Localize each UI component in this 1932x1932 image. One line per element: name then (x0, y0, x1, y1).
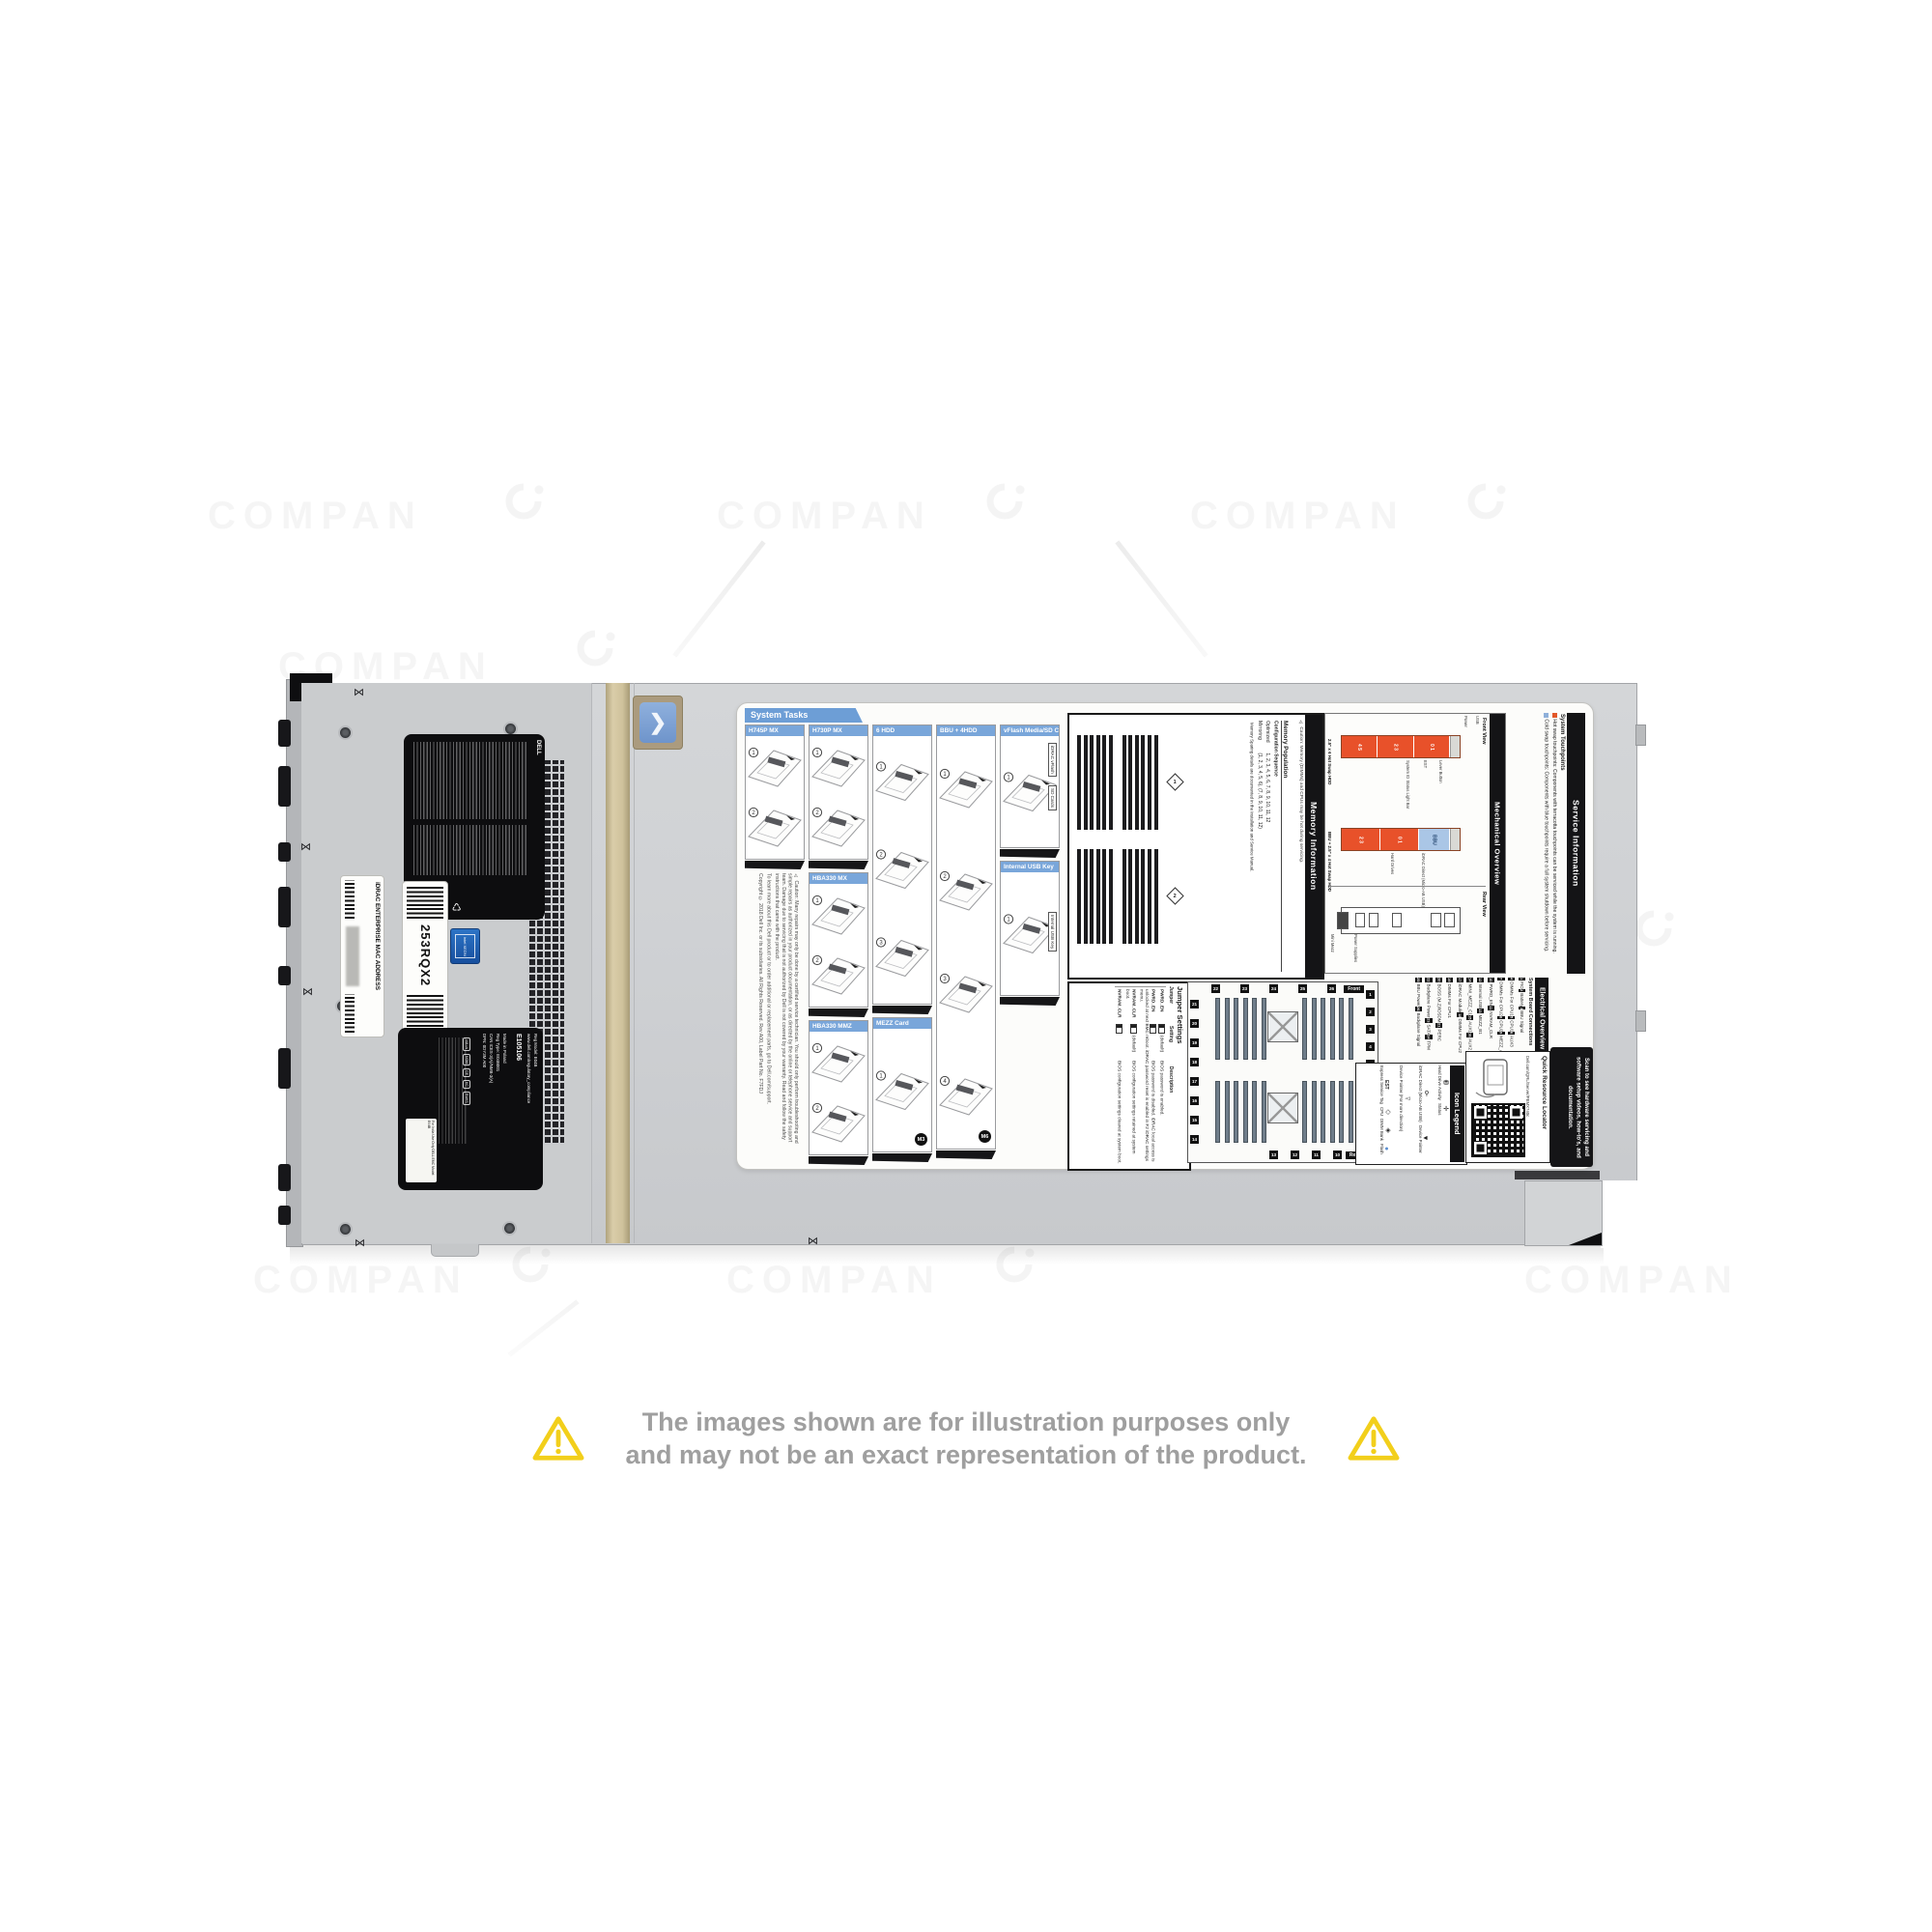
connection-name: MEZZ_B1 (1478, 1013, 1483, 1035)
electrical-overview: Electrical Overview System Board Connect… (1380, 978, 1548, 1059)
dimm-slot (1262, 998, 1266, 1060)
metric-badge: M3 (915, 1133, 927, 1146)
task-panel-body: 12 (810, 884, 867, 1007)
cpu-socket (1267, 1011, 1298, 1042)
made-in: Made in Poland (501, 1034, 507, 1184)
cfg: Mirroring (1256, 721, 1262, 752)
connection-item: 7 DIMMs For CPU2 (1496, 978, 1504, 1016)
bbu-segment: BBU (1419, 829, 1450, 850)
task-illustration: 1 (810, 1032, 867, 1092)
product-photo: COMPANCOMPANCOMPANCOMPANCOMPANCOMPANCOMP… (0, 0, 1932, 1932)
task-illustration: 3 (937, 941, 995, 1043)
dimm-slot (1141, 847, 1145, 944)
screw (505, 724, 516, 734)
connection-item: 24 TPM (1424, 1035, 1432, 1050)
front-view-title: Front View (1481, 718, 1486, 744)
page-curl-bar (809, 1156, 868, 1165)
connection-name: BBU Power (1416, 982, 1421, 1007)
jumper-description: BIOS configuration settings cleared at s… (1118, 1061, 1122, 1164)
connection-item: 2 Battery (1518, 989, 1525, 1008)
legend-entry: ESTExpress Service Tag (1378, 1065, 1389, 1104)
dimm-slot (1262, 1081, 1266, 1143)
connection-item: 15 AUX1 (1465, 1015, 1473, 1033)
mech-callout: Power Supplies (1352, 934, 1357, 969)
butterfly-cutout: ⋈ (300, 840, 311, 853)
h-description: Description (1168, 1066, 1174, 1094)
jumper-name: PWRD_EN (1159, 989, 1165, 1022)
hard-drive-activity-icon: ⛃ (1441, 1065, 1449, 1100)
barcode (345, 880, 355, 919)
task-panel-title: Internal USB Key (1001, 862, 1059, 872)
connection-name: Battery (1520, 992, 1524, 1008)
dimm-slot (1215, 1081, 1220, 1143)
connection-item: 4 DIMMs For CPU1 (1507, 978, 1515, 1016)
connection-name: BOSS (M.2)/IDSDM (1436, 982, 1441, 1022)
jumper-name: NVRAM_CLR (1131, 989, 1137, 1022)
board-callout: 18 (1190, 1058, 1199, 1066)
task-panel-title: BBU + 4HDD (937, 725, 995, 736)
warning-triangle-icon (530, 1413, 586, 1463)
dimm-slot (1077, 847, 1081, 944)
watermark-logo-icon (574, 626, 616, 674)
copyright-paragraph: Copyright © 2018 Dell Inc. or its subsid… (756, 873, 763, 1155)
electrical-overview-header: Electrical Overview (1535, 978, 1548, 1059)
dimm-slot (1154, 847, 1158, 944)
dimm-slot (1252, 1081, 1257, 1143)
dimm-slot (1225, 998, 1230, 1060)
dimm-slot (1339, 1081, 1344, 1143)
front-latch (278, 842, 291, 862)
callout-box: Internal USB Key (1048, 912, 1057, 952)
system-tasks-tab: System Tasks (745, 708, 863, 723)
reg-text-col2: Made in Poland Reg Type: E04B001 CAN ICE… (480, 1034, 508, 1184)
front-tag: Front (1344, 985, 1364, 993)
reg-type: Reg Type: E04B001 (495, 1034, 500, 1184)
watermark-logo-icon (1633, 906, 1675, 954)
dpn: DPN: 0DY3M A00 (481, 1034, 487, 1184)
butterfly-cutout: ⋈ (354, 686, 364, 698)
qrl-title: Quick Resource Locator (1540, 1056, 1548, 1158)
dimm-slot (1252, 998, 1257, 1060)
watermark-logo-icon (502, 479, 545, 527)
dimm-bank-row: 1 (1077, 724, 1205, 838)
connection-name: DIMMs For CPU2 (1499, 980, 1504, 1016)
dimm-bank-badge: 1 (1166, 773, 1183, 790)
tasks-caution: ⚠ Caution: Many repairs may only be done… (745, 873, 801, 1155)
legend-entry: ◇CPU (1378, 1107, 1391, 1116)
task-panel: vFlash Media/SD Card1iDRAC vFlashSD Card… (1000, 724, 1060, 848)
dimm-slot (1084, 847, 1088, 944)
dimm-slot (1225, 1081, 1230, 1143)
mechanical-overview-panel: Mechanical Overview Front View 2.5" x 6 … (1324, 713, 1506, 974)
barcode (345, 994, 355, 1033)
qrl-panel: Quick Resource Locator Dell.com/QRL/Serv… (1465, 1051, 1550, 1163)
task-panel-title: 6 HDD (873, 725, 931, 736)
dimm-slot (1077, 733, 1081, 830)
screw (504, 1223, 515, 1234)
connection-name: Backplane Power (1427, 982, 1432, 1017)
task-panel: H730P MX12 (809, 724, 868, 860)
server-shadow (290, 1245, 1604, 1264)
rear-connector (1369, 913, 1378, 927)
dimm-slot (1339, 998, 1344, 1060)
rear-view-diagram (1341, 907, 1461, 934)
dimm-slot (1312, 998, 1317, 1060)
flash-icon: ● (1383, 1144, 1390, 1154)
board-callout: 12 (1291, 1151, 1299, 1159)
system-board-diagram: Front Rear 12345678910111213141516171819… (1187, 981, 1378, 1163)
dimm-slot (1321, 998, 1325, 1060)
task-illustration: 3 (873, 912, 931, 1000)
board-callout: 19 (1190, 1038, 1199, 1047)
recycle-icon: ♺ (452, 902, 469, 914)
dimm-slot (1312, 1081, 1317, 1143)
task-panel-title: H730P MX (810, 725, 867, 736)
cold-swap-note: Cold swap touchpoints: Components with b… (1543, 713, 1549, 974)
mech-callout: USB (1474, 716, 1479, 733)
icon-legend-entries: ⛃Hard Drive Activity✛Status⚲iDRAC Direct… (1373, 1065, 1450, 1162)
connection-item: 8 CPU2 (1496, 1016, 1504, 1032)
task-panel-body: 12 (810, 736, 867, 859)
rear-connector (1392, 913, 1402, 927)
jumper-icon (1116, 1024, 1122, 1034)
watermark-logo-icon (1633, 906, 1675, 954)
legend-entry: ◄Device Pointer (1417, 1125, 1429, 1153)
dimm-slot (1141, 733, 1145, 830)
rear-connector (1431, 913, 1441, 927)
memory-information-panel: Memory Information ⚠ Caution: Memory (DI… (1067, 713, 1324, 980)
service-tag-text: 253RQX2 (418, 924, 433, 988)
dimm-slot (1109, 733, 1113, 830)
task-panel: MEZZ Card1M3 (872, 1017, 932, 1152)
watermark-text: COMPAN (208, 495, 423, 538)
jumper-settings-panel: Jumper Settings Jumper Setting Descripti… (1067, 981, 1191, 1171)
device-pointer-icon: ◄ (1422, 1125, 1429, 1153)
connection-item: 6 AUX3 (1507, 1032, 1515, 1047)
butterfly-cutout: ⋈ (302, 985, 313, 998)
task-panel-title: MEZZ Card (873, 1018, 931, 1029)
mac-redacted (346, 926, 359, 986)
front-latch (278, 1164, 291, 1191)
dimm-slot (1135, 733, 1139, 830)
barcode (407, 886, 443, 919)
jumper-name: NVRAM_CLR (1117, 989, 1122, 1022)
task-illustration: 1 (873, 1029, 931, 1150)
jumper-row: PWRD_EN BIOS password is disabled. iDRAC… (1138, 986, 1157, 1166)
connections-list: 1 FIO2 Battery3 BBU Signal4 DIMMs For CP… (1411, 978, 1525, 1059)
board-callout: 13 (1269, 1151, 1278, 1159)
dimm-slot (1148, 847, 1151, 944)
cpu-socket (1267, 1093, 1298, 1123)
connection-item: 26 Backplane Signal (1414, 1007, 1422, 1046)
board-callout: 22 (1211, 984, 1220, 993)
callout-box: iDRAC vFlash (1048, 743, 1057, 777)
device-pointer-more-icon: ◅ (1403, 1065, 1410, 1131)
legend-label: Express Service Tag (1378, 1065, 1383, 1104)
dimm-slot (1349, 998, 1353, 1060)
legend-entry: ⛃Hard Drive Activity (1436, 1065, 1449, 1100)
connection-item: 21 PERC (1435, 1023, 1442, 1041)
mech-callout: EST (1422, 760, 1427, 822)
cold-text: Cold swap touchpoints: Components with b… (1543, 719, 1548, 952)
connection-name: NVRAM_CLR (1489, 1010, 1493, 1038)
connection-item: 5 CPU1 (1507, 1016, 1515, 1032)
qr-finder (1510, 1106, 1522, 1119)
legend-entry: ✛Status (1436, 1103, 1449, 1115)
connection-name: Internal USB (1478, 982, 1483, 1009)
connection-name: CPU2 (1499, 1019, 1504, 1032)
task-column: H730P MX12HBA330 MX12HBA330 MMZ12 (809, 724, 868, 1168)
watermark-text: COMPAN (717, 495, 932, 538)
warning-triangle-icon (1346, 1413, 1402, 1463)
dimm-slot (1154, 733, 1158, 830)
rear-slot (1515, 1171, 1600, 1179)
page-curl-bar (809, 1009, 868, 1017)
connection-name: CPU1 (1509, 1019, 1514, 1032)
dimm-slot (1122, 733, 1126, 830)
task-illustration: 1 (937, 736, 995, 838)
microtext-block (413, 742, 527, 819)
dimm-slot (1122, 847, 1126, 944)
jumper-rows: PWRD_EN (default) BIOS password is enabl… (1115, 986, 1166, 1166)
memory-note: Memory Sparing details are documented in… (1248, 723, 1254, 972)
task-panel: Internal USB Key1Internal USB Key (1000, 861, 1060, 996)
page-curl-bar (872, 1153, 932, 1162)
board-callout: 11 (1312, 1151, 1321, 1159)
microtext-block (439, 1037, 468, 1144)
task-illustration: 2 (873, 824, 931, 912)
service-information-label: System Tasks H745P MX12⚠ Caution: Many r… (736, 702, 1594, 1170)
connection-name: AUX2 (1467, 1037, 1472, 1050)
dimm-bank (1215, 998, 1271, 1060)
hdd6-label: 2.5" x 6 Hot Swap HDD (1327, 739, 1332, 784)
disclaimer-line1: The images shown are for illustration pu… (625, 1406, 1306, 1438)
mechanical-overview-header: Mechanical Overview (1490, 714, 1505, 973)
reg-text-col1: Reg Model: E04B www.dell.com/regulatory_… (525, 1034, 539, 1184)
divider (1329, 886, 1486, 887)
screw (340, 727, 351, 738)
dimm-slot (1215, 998, 1220, 1060)
side-tab (1635, 724, 1646, 746)
memory-population-title: Memory Population (1281, 721, 1288, 972)
india-box: For India Use Only DELL EMC Model: E04B (406, 1119, 437, 1182)
task-panel-body: 123 (873, 736, 931, 1004)
board-callout: 3 (1366, 1025, 1375, 1034)
rear-connector (1444, 913, 1455, 927)
connection-name: PERC (1436, 1028, 1441, 1041)
bbu4-diagram: 2 30 1BBU (1341, 828, 1461, 851)
legend-label: Hard Drive Activity (1436, 1065, 1441, 1100)
dimm-slot (1096, 847, 1100, 944)
task-panel-title: HBA330 MX (810, 873, 867, 884)
dimm-slot (1330, 998, 1335, 1060)
watermark-text: COMPAN (1524, 1259, 1740, 1302)
release-button: ❯ (639, 702, 676, 743)
legend-label: Device Pointer (1417, 1125, 1422, 1153)
memory-information-header: Memory Information (1305, 715, 1322, 978)
legend-entry: ●Flash (1378, 1144, 1390, 1154)
microtext-block (413, 825, 527, 875)
connection-item: 22 Backplane Power (1424, 978, 1432, 1018)
dimm-bank-badge: 2 (1166, 887, 1183, 904)
hot-text: Hot swap touchpoints: Components with te… (1551, 719, 1557, 952)
task-illustration: 1 (810, 736, 867, 796)
task-panel-title: HBA330 MMZ (810, 1021, 867, 1032)
watermark-text: COMPAN (1190, 495, 1406, 538)
board-callout: 4 (1366, 1042, 1375, 1051)
watermark-logo-icon (1464, 479, 1507, 527)
hdd6-diagram: 4 52 30 1 (1341, 735, 1461, 758)
dimm-slot (1148, 733, 1151, 830)
connection-item: 18 DIMMs For CPU2 (1456, 1012, 1463, 1053)
drive-segment: 2 3 (1378, 736, 1413, 757)
page-curl-bar (745, 861, 805, 869)
task-column: BBU + 4HDD1234M6 (936, 724, 996, 1162)
drive-segment: 0 1 (1380, 829, 1419, 850)
board-callout: 23 (1240, 984, 1249, 993)
mech-callout: Mini Mezz (1329, 934, 1334, 969)
cfg: Optimized (1264, 721, 1270, 752)
page-curl-bar (936, 1151, 996, 1159)
butterfly-cutout: ⋈ (355, 1236, 365, 1249)
board-callout: 26 (1327, 984, 1336, 993)
memory-caution: ⚠ Caution: Memory (DIMMs) and CPUs may b… (1298, 721, 1303, 972)
dimm-slot (1084, 733, 1088, 830)
dimm-bank (1215, 1081, 1271, 1143)
light-streak (508, 1299, 580, 1356)
legend-label: Flash (1378, 1144, 1383, 1154)
rear-foot (1524, 1180, 1603, 1246)
task-panel: H745P MX12 (745, 724, 805, 860)
connection-name: SATA (1427, 1023, 1432, 1035)
front-latch (278, 766, 291, 807)
dimm-bank-number: 2 (1174, 893, 1177, 898)
system-board-connections-title: System Board Connections (1527, 978, 1533, 1059)
legend-entry: ⚲iDRAC Direct (Micro-AB USB) (1417, 1065, 1430, 1122)
connection-item: 20 BOSS (M.2)/IDSDM (1435, 978, 1442, 1023)
dimm-slot (1128, 847, 1132, 944)
task-column: H745P MX12⚠ Caution: Many repairs may on… (745, 724, 805, 1155)
connection-name: DIMMs For CPU2 (1458, 1017, 1463, 1053)
disclaimer-text: The images shown are for illustration pu… (625, 1406, 1306, 1471)
dimm-bank-icon: ◈ (1383, 1119, 1391, 1141)
connection-item: 11 NVRAM_CLR (1487, 1006, 1494, 1038)
col-configuration: Configuration (1272, 721, 1278, 753)
connection-name: DIMMs For CPU1 (1509, 980, 1514, 1016)
side-tab (1635, 1010, 1646, 1032)
chevron-right-icon: ❯ (649, 710, 667, 735)
hot-touchpoint-swatch (1552, 713, 1557, 718)
dimm-slot (1330, 1081, 1335, 1143)
mech-callout: Power (1463, 716, 1467, 733)
bbu4-label: BBU + 2.5" x 4 Hot Swap HDD (1327, 832, 1332, 892)
drive-segment: 0 1 (1414, 736, 1450, 757)
page-curl-bar (809, 861, 868, 869)
watermark-text: COMPAN (253, 1259, 469, 1302)
rear-connector (1337, 912, 1349, 929)
task-panel-body: 12 (746, 736, 804, 859)
dimm-slot (1243, 998, 1248, 1060)
connection-item: 10 PWRD_EN (1487, 978, 1494, 1006)
jumper-setting: (default) (1159, 1036, 1165, 1061)
dimm-bank (1302, 998, 1358, 1060)
front-latch (278, 1206, 291, 1225)
learn-more-paragraph: To learn more about this Dell product or… (765, 873, 772, 1155)
connection-name: TPM (1427, 1039, 1432, 1050)
board-callout: 16 (1190, 1096, 1199, 1105)
rear-connector (1355, 913, 1365, 927)
connection-item: 19 DIMMs For CPU1 (1445, 978, 1453, 1018)
page-curl-bar (872, 1006, 932, 1014)
service-information-panel: Service Information System Touchpoints H… (1508, 713, 1585, 974)
jumper-icon (1130, 1024, 1137, 1034)
watermark-logo-icon (1464, 479, 1507, 527)
dimm-slot (1243, 1081, 1248, 1143)
disclaimer-line2: and may not be an exact representation o… (625, 1438, 1306, 1471)
light-streak (672, 540, 765, 657)
task-panel-title: vFlash Media/SD Card (1001, 725, 1059, 736)
reg-model: Reg Model: E04B (532, 1034, 538, 1184)
dimm-slot (1234, 1081, 1238, 1143)
board-callout: 17 (1190, 1077, 1199, 1086)
jumper-name: PWRD_EN (1151, 989, 1156, 1022)
reg-site: www.dell.com/regulatory_compliance (526, 1034, 531, 1184)
board-callout: 24 (1269, 984, 1278, 993)
dimm-group (1122, 847, 1161, 944)
dimm-group (1077, 733, 1116, 830)
regulatory-label-bottom: Reg Model: E04B www.dell.com/regulatory_… (398, 1028, 543, 1190)
butterfly-cutout: ⋈ (808, 1235, 818, 1247)
mech-callout: iDRAC Direct (Micro-AB USB) (1420, 853, 1425, 884)
memory-row-optimized: Optimized 1, 2, 3, 4, 5, 6, 7, 8, 9, 10,… (1264, 721, 1270, 972)
dimm-slot (1302, 1081, 1307, 1143)
watermark-logo-icon (983, 479, 1026, 527)
connection-item: 13 MEZZ_B1 (1476, 1009, 1484, 1035)
legend-label: iDRAC Direct (Micro-AB USB) (1417, 1065, 1422, 1122)
system-touchpoints-title: System Touchpoints (1559, 714, 1565, 973)
connection-item: 16 AUX2 (1465, 1033, 1473, 1050)
end-cap (1450, 736, 1460, 757)
light-streak (1115, 540, 1207, 657)
qr-finder (1474, 1106, 1487, 1119)
idrac-mac-label: iDRAC ENTERPRISE MAC ADDRESS (340, 875, 384, 1037)
end-cap (1450, 829, 1460, 850)
connection-item: 1 FIO (1518, 978, 1525, 989)
connection-name: MINI_MEZZ_C1 (1467, 982, 1472, 1015)
jumper-row: NVRAM_CLR BIOS configuration settings cl… (1115, 986, 1123, 1166)
jumper-setting: (default) (1131, 1036, 1137, 1061)
dimm-bank-number: 1 (1174, 779, 1177, 784)
board-callout: 1 (1366, 990, 1375, 999)
task-column: vFlash Media/SD Card1iDRAC vFlashSD Card… (1000, 724, 1060, 1009)
connection-name: Backplane Signal (1416, 1011, 1421, 1046)
jumper-row: NVRAM_CLR (default) BIOS configuration s… (1123, 986, 1138, 1166)
memory-population: Memory Population Configuration Sequence… (1208, 721, 1290, 972)
task-illustration: 2 (810, 796, 867, 856)
task-illustration: 2 (746, 796, 804, 856)
connection-name: BBU Signal (1520, 1009, 1524, 1033)
dimm-slot (1090, 847, 1094, 944)
task-column: 6 HDD123MEZZ Card1M3 (872, 724, 932, 1165)
legend-label: Device Pointer (For more direction) (1398, 1065, 1403, 1131)
task-panel: HBA330 MMZ12 (809, 1020, 868, 1155)
task-panel-body: 12 (810, 1032, 867, 1154)
task-illustration: 2 (810, 1092, 867, 1151)
dimm-slot (1135, 847, 1139, 944)
task-illustration: 1 (746, 736, 804, 796)
mech-callout: Hard Drives (1389, 853, 1394, 884)
jumper-headers: Jumper Setting Description (1168, 986, 1174, 1166)
